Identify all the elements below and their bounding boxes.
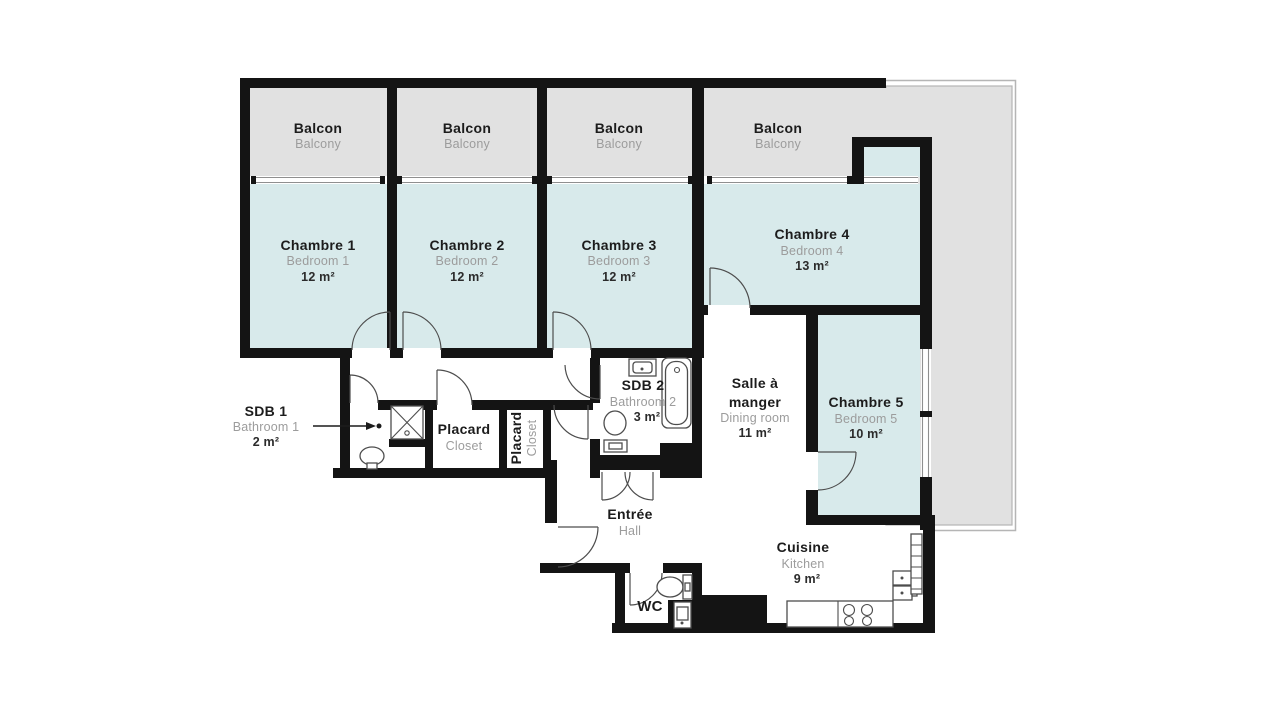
radiator-icon <box>911 534 922 594</box>
placard1-sub: Closet <box>446 439 483 453</box>
cuisine-sub: Kitchen <box>781 557 824 571</box>
kitchen-counter <box>787 601 893 627</box>
balcon1-name: Balcon <box>294 120 342 136</box>
wall <box>387 78 397 348</box>
wall <box>425 400 433 478</box>
window-chambre3 <box>547 176 693 184</box>
chambre4-area: 13 m² <box>795 259 829 273</box>
wall <box>923 515 935 633</box>
label-balcon2: Balcon Balcony <box>443 120 491 151</box>
wall <box>806 305 818 452</box>
chambre3-name: Chambre 3 <box>581 237 656 253</box>
chambre3-area: 12 m² <box>602 270 636 284</box>
label-balcon1: Balcon Balcony <box>294 120 342 151</box>
wall <box>590 358 600 403</box>
window-alcove <box>864 176 918 184</box>
label-cuisine: Cuisine Kitchen 9 m² <box>777 539 830 586</box>
wall <box>615 563 625 633</box>
shower-icon <box>391 406 423 439</box>
wall <box>920 411 932 417</box>
cuisine-area: 9 m² <box>794 572 821 586</box>
salle-area: 11 m² <box>739 426 772 440</box>
balcony-strip <box>250 88 920 176</box>
salle-sub: Dining room <box>720 411 790 425</box>
wall <box>540 563 625 573</box>
chambre4-name: Chambre 4 <box>774 226 849 242</box>
window-chambre2 <box>397 176 537 184</box>
sdb2-sub: Bathroom 2 <box>610 395 677 409</box>
wall <box>590 439 600 455</box>
floor-plan: Balcon Balcony Balcon Balcony Balcon Bal… <box>0 0 1280 720</box>
balcon4-sub: Balcony <box>755 137 801 151</box>
chambre3-sub: Bedroom 3 <box>588 254 651 268</box>
chambre1-sub: Bedroom 1 <box>287 254 350 268</box>
balcon2-name: Balcon <box>443 120 491 136</box>
label-placard1: Placard Closet <box>438 421 491 453</box>
label-wc: WC <box>637 598 663 615</box>
toilet-icon <box>604 411 627 452</box>
sdb1-sub: Bathroom 1 <box>233 420 300 434</box>
wall <box>695 595 767 633</box>
room-chambre4-alcove <box>864 147 920 177</box>
label-placard2: Placard Closet <box>508 412 539 465</box>
chambre5-sub: Bedroom 5 <box>835 412 898 426</box>
sink-icon <box>629 359 656 376</box>
wall <box>600 455 660 470</box>
label-balcon3: Balcon Balcony <box>595 120 643 151</box>
balcon3-name: Balcon <box>595 120 643 136</box>
wall <box>499 400 507 478</box>
window-chambre4 <box>707 176 852 184</box>
wall <box>806 490 818 525</box>
wall <box>692 78 704 348</box>
bathtub-icon <box>662 358 691 428</box>
wall <box>240 348 352 358</box>
wall <box>750 305 932 315</box>
chambre2-sub: Bedroom 2 <box>436 254 499 268</box>
window-chambre5-upper <box>921 349 931 411</box>
chambre2-area: 12 m² <box>450 270 484 284</box>
wall <box>441 348 553 358</box>
door-sdb1 <box>350 375 378 403</box>
sdb1-name: SDB 1 <box>245 403 288 419</box>
wall <box>545 460 557 523</box>
salle-name-line2: manger <box>729 394 782 410</box>
wall <box>920 137 932 349</box>
wall <box>590 455 600 478</box>
toilet-icon <box>657 575 692 599</box>
sdb2-area: 3 m² <box>634 410 661 424</box>
wall <box>537 78 547 348</box>
wall <box>852 137 864 184</box>
door-sdb2 <box>554 405 588 439</box>
sdb2-name: SDB 2 <box>622 377 665 393</box>
wall <box>389 439 425 447</box>
placard2-sub: Closet <box>525 419 539 456</box>
label-balcon4: Balcon Balcony <box>754 120 802 151</box>
wall <box>240 78 250 358</box>
sdb1-area: 2 m² <box>253 435 280 449</box>
placard1-name: Placard <box>438 421 491 437</box>
placard2-name: Placard <box>508 412 524 465</box>
chambre1-name: Chambre 1 <box>280 237 355 253</box>
wall <box>692 348 702 478</box>
wall <box>390 348 403 358</box>
balcon2-sub: Balcony <box>444 137 490 151</box>
entree-name: Entrée <box>607 506 652 522</box>
chambre4-sub: Bedroom 4 <box>781 244 844 258</box>
label-entree: Entrée Hall <box>607 506 652 538</box>
wc-name: WC <box>637 598 663 615</box>
entree-sub: Hall <box>619 524 641 538</box>
door-entrance <box>558 527 598 567</box>
chambre2-name: Chambre 2 <box>429 237 504 253</box>
cuisine-name: Cuisine <box>777 539 830 555</box>
window-chambre5-lower <box>921 417 931 477</box>
balcon4-name: Balcon <box>754 120 802 136</box>
salle-name-line1: Salle à <box>732 375 778 391</box>
balcon1-sub: Balcony <box>295 137 341 151</box>
sink-icon <box>360 447 384 469</box>
chambre5-name: Chambre 5 <box>828 394 903 410</box>
room-fills <box>250 147 920 515</box>
window-chambre1 <box>251 176 385 184</box>
wall <box>340 352 350 478</box>
wall <box>806 515 935 525</box>
wall <box>472 400 593 410</box>
chambre1-area: 12 m² <box>301 270 335 284</box>
door-corridor <box>437 370 472 405</box>
chambre5-area: 10 m² <box>849 427 883 441</box>
label-salle-a-manger: Salle à manger Dining room 11 m² <box>720 375 790 440</box>
wall <box>240 78 886 88</box>
sink-icon <box>674 602 691 628</box>
wall <box>591 348 704 358</box>
label-sdb1: SDB 1 Bathroom 1 2 m² <box>233 403 382 449</box>
balcon3-sub: Balcony <box>596 137 642 151</box>
